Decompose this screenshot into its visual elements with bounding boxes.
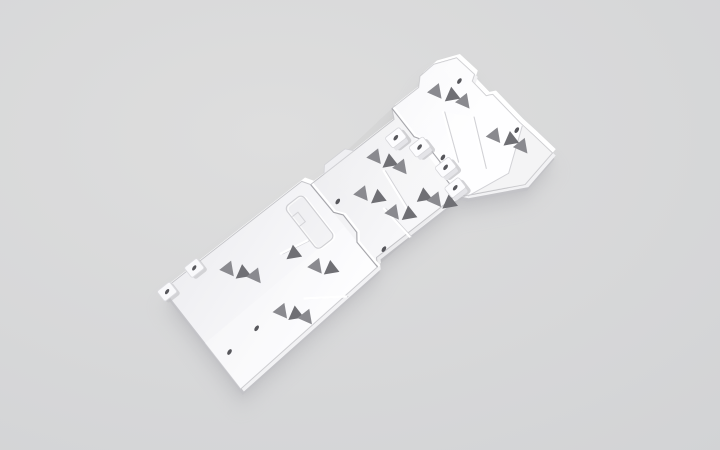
product-image xyxy=(0,0,720,450)
render-stage xyxy=(0,0,720,450)
